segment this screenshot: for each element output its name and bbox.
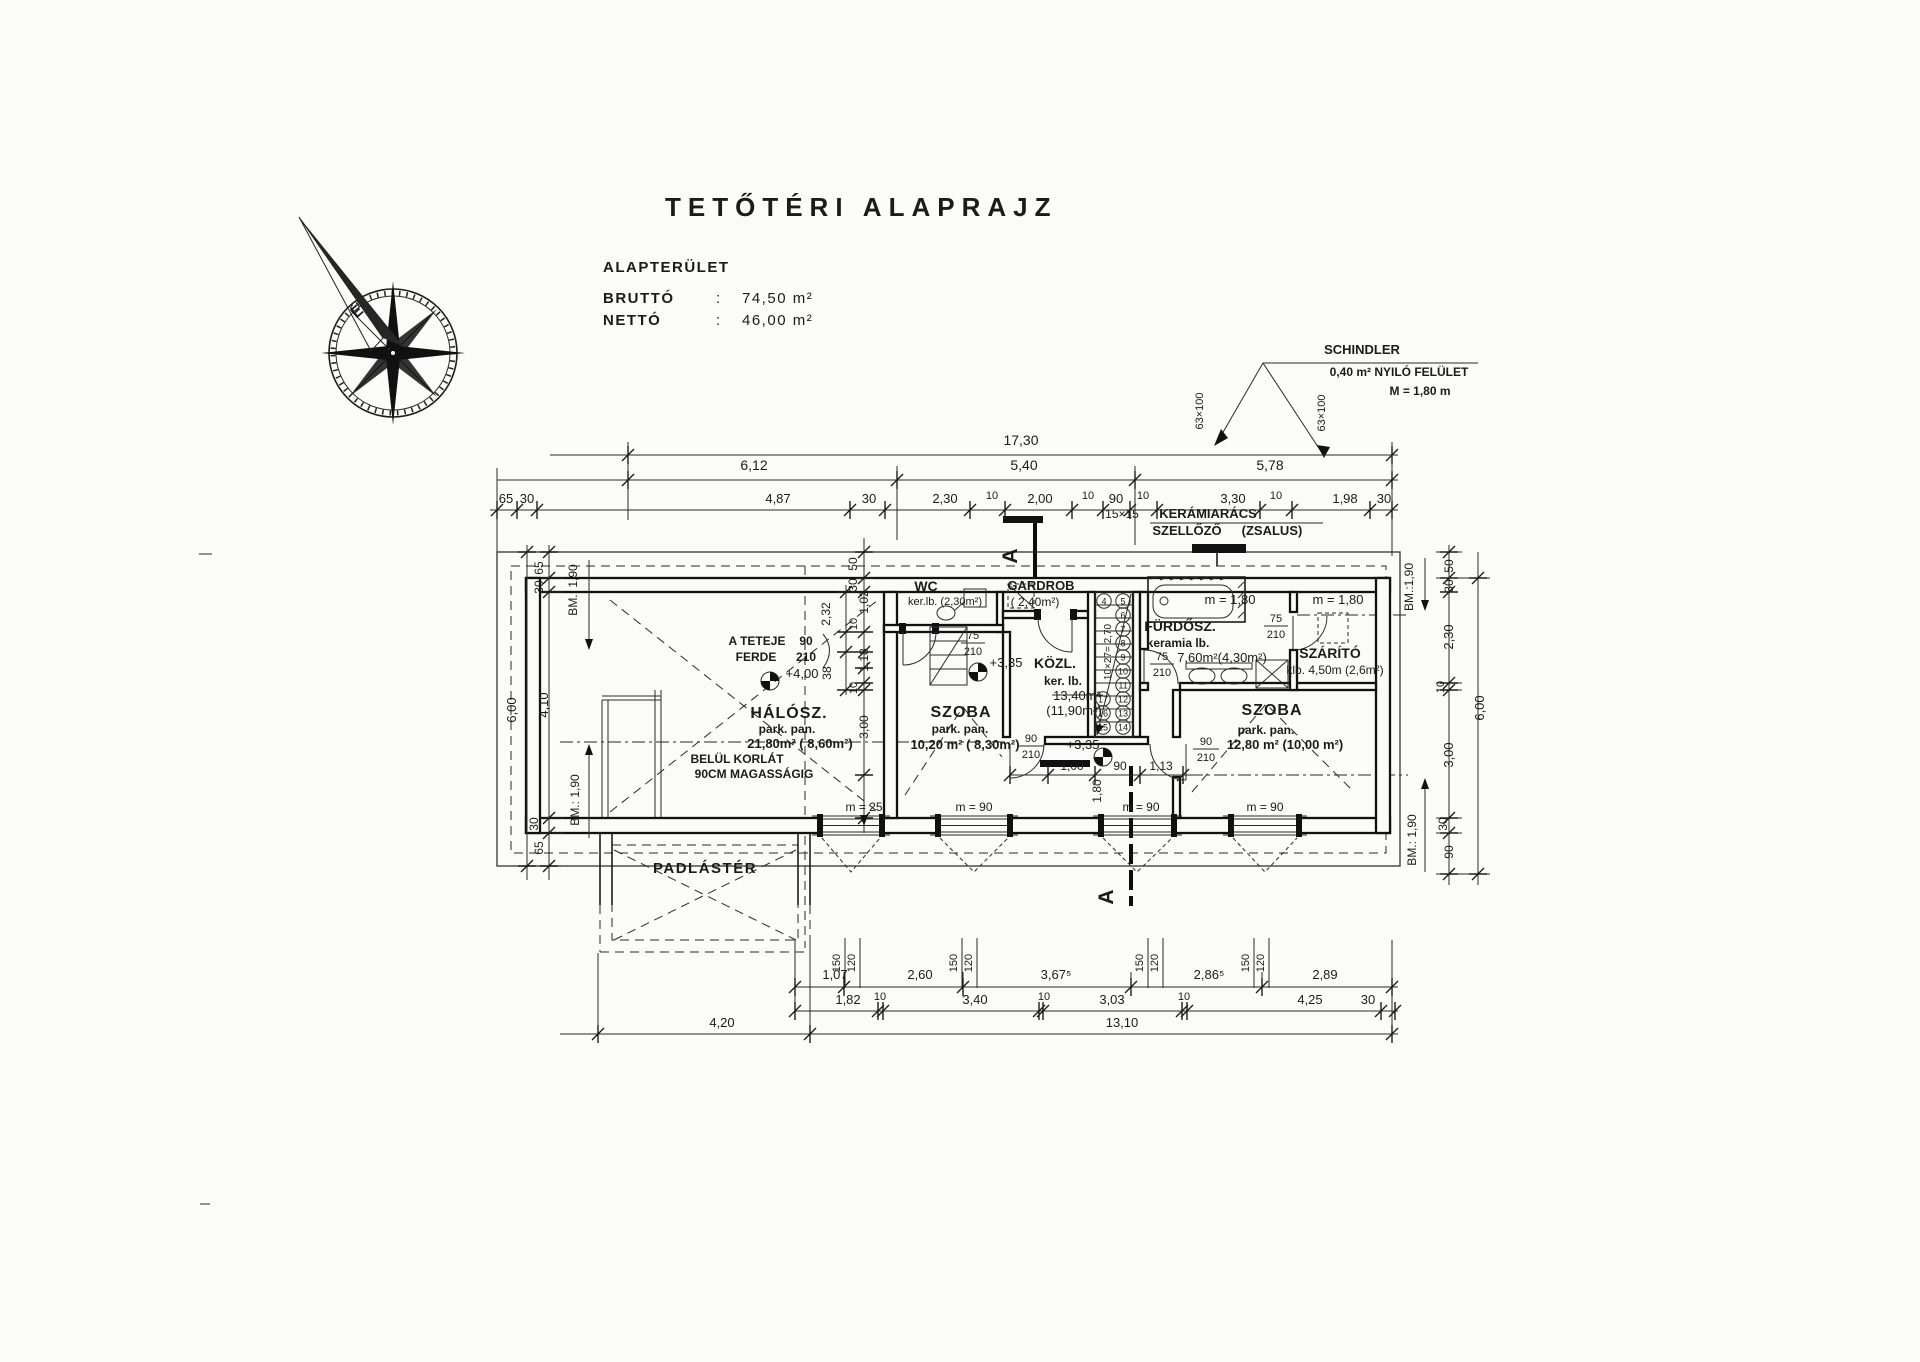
dim-label: 120 — [846, 954, 858, 972]
door-width: 90 — [1025, 733, 1037, 745]
vent-shutter: (ZSALUS) — [1242, 523, 1303, 538]
roof-note-value: 90 — [799, 634, 813, 648]
step-number: 4 — [1101, 597, 1106, 607]
area-row-colon: : — [716, 290, 722, 307]
door-height: 210 — [1022, 749, 1040, 761]
vent-type: SZELLŐZŐ — [1152, 523, 1221, 538]
section-label: A — [999, 548, 1022, 563]
dim-label: 5,40 — [1010, 457, 1037, 473]
dim-label: 120 — [963, 954, 975, 972]
washbasins — [1186, 663, 1252, 684]
dim-label: 4,25 — [1297, 992, 1322, 1007]
dim-label: 1,98 — [1332, 491, 1357, 506]
area-table: ALAPTERÜLET BRUTTÓ : 74,50 m² NETTÓ : 46… — [603, 259, 813, 329]
dim-label: 10 — [1178, 991, 1190, 1003]
area-row-colon: : — [716, 312, 722, 329]
railing-note: 90CM MAGASSÁGIG — [695, 766, 814, 781]
schindler-area: 0,40 m² NYILÓ FELÜLET — [1330, 364, 1469, 379]
dim-label: 10 — [848, 682, 860, 694]
room-area: 13,40m² — [1053, 688, 1101, 703]
door-height: 210 — [964, 646, 982, 658]
dim-label: 2,30 — [1441, 624, 1456, 649]
dim-label: 3,30 — [1220, 491, 1245, 506]
section-label: A — [1095, 889, 1118, 904]
schindler-height: M = 1,80 m — [1389, 384, 1450, 398]
door-height: 210 — [1153, 667, 1171, 679]
room-area: 7,60m²(4,30m²) — [1177, 650, 1267, 665]
room-area: (11,90m²) — [1046, 703, 1101, 718]
area-row-label: BRUTTÓ — [603, 289, 675, 307]
level-marker-icon — [761, 672, 779, 690]
dim-label: 120 — [1149, 954, 1161, 972]
dim-label: 4,20 — [709, 1015, 734, 1030]
page-title: TETŐTÉRI ALAPRAJZ — [665, 192, 1057, 222]
dim-label: 1,18 — [857, 648, 871, 672]
room-name: FÜRDŐSZ. — [1144, 617, 1216, 634]
room-name: SZOBA — [931, 704, 992, 721]
room-finish: keramia lb. — [1147, 636, 1210, 650]
step-number: 8 — [1120, 639, 1125, 649]
dim-label: 30 — [520, 491, 534, 506]
dim-label: 10 — [874, 991, 886, 1003]
dim-label: 30 — [862, 491, 876, 506]
dim-label: 1,82 — [835, 992, 860, 1007]
vent-grid-size: 15×15 — [1105, 507, 1139, 521]
dim-label: 90 — [1113, 759, 1127, 773]
dim-label: 65 — [532, 841, 546, 855]
dim-label: 2,00 — [1027, 491, 1052, 506]
dim-label: 30 — [846, 578, 860, 592]
room-area: 21,80m² ( 8,60m²) — [747, 736, 853, 751]
step-number: 12 — [1118, 695, 1128, 705]
level-value: +4,00 — [786, 666, 819, 681]
dim-label: 3,00 — [1441, 742, 1456, 767]
schindler-note: SCHINDLER 0,40 m² NYILÓ FELÜLET M = 1,80… — [1194, 342, 1478, 458]
step-number: 13 — [1118, 709, 1128, 719]
dim-label: 90 — [1109, 491, 1123, 506]
area-row-label: NETTÓ — [603, 311, 661, 329]
dim-label: 2,89 — [1312, 967, 1337, 982]
dim-label: 1,80 — [1090, 779, 1104, 803]
room-finish: ker. lb. — [1044, 674, 1082, 688]
dim-label: 13,10 — [1106, 1015, 1139, 1030]
room-finish: park. pan. — [1238, 723, 1295, 737]
door-width: 90 — [1200, 736, 1212, 748]
dim-label: 10 — [986, 490, 998, 502]
dim-label: 6,00 — [1472, 695, 1487, 720]
tub-length-label: m = 1,80 — [1205, 592, 1256, 607]
dim-label: 5,78 — [1256, 457, 1283, 473]
dim-label: 30 — [527, 817, 541, 831]
level-value: +3,35 — [990, 655, 1023, 670]
dim-label: 50 — [1442, 559, 1456, 573]
stair-run-label: 10×27= 2,70 — [1103, 623, 1114, 680]
roof-note-label: A TETEJE — [729, 634, 786, 648]
door-height: 210 — [1197, 752, 1215, 764]
step-number: 5 — [1120, 597, 1125, 607]
left-dimensions: 6,00 65 30 4,10 30 65 BM.: 1,90 BM.: 1,9… — [504, 561, 582, 855]
dim-label: 4,87 — [765, 491, 790, 506]
dim-label: 30 — [1377, 491, 1391, 506]
vent-name: KERÁMIARÁCS — [1159, 506, 1257, 521]
dim-label: 17,30 — [1003, 432, 1038, 448]
door-width: 75 — [1156, 651, 1168, 663]
dim-label: 1,13 — [1149, 759, 1173, 773]
dim-label: 10 — [1038, 991, 1050, 1003]
dim-label: 65 — [532, 561, 546, 575]
door-width: 75 — [1270, 613, 1282, 625]
door-height: 210 — [1267, 629, 1285, 641]
dim-label: 150 — [948, 954, 960, 972]
dim-label: 10 — [1082, 490, 1094, 502]
step-number: 11 — [1118, 681, 1127, 691]
dim-label: 65 — [499, 491, 513, 506]
step-number: 14 — [1118, 723, 1128, 733]
dim-label: 90 — [1442, 845, 1456, 859]
bm-label: BM.:1,90 — [1402, 563, 1416, 611]
room-finish: park. pan. — [759, 722, 816, 736]
sill-height: m = 90 — [1122, 800, 1159, 814]
roof-window-size: 63×100 — [1194, 392, 1206, 429]
area-row-value: 46,00 m² — [742, 312, 813, 329]
dim-label: 3,00 — [857, 715, 871, 739]
step-number: 9 — [1120, 653, 1125, 663]
level-value: +3,35 — [1067, 737, 1100, 752]
step-number: 10 — [1118, 667, 1128, 677]
bm-label: BM.: 1,90 — [568, 774, 582, 826]
sill-height: m = 25 — [845, 800, 882, 814]
room-name: HÁLÓSZ. — [750, 703, 827, 722]
sill-height: m = 90 — [955, 800, 992, 814]
dim-label: 2,32 — [819, 602, 833, 626]
area-heading: ALAPTERÜLET — [603, 259, 730, 276]
bm-label: BM.: 1,90 — [1405, 814, 1419, 866]
dryer-dashed-box — [1318, 613, 1348, 643]
area-row-value: 74,50 m² — [742, 290, 813, 307]
room-finish: park. pan. — [932, 722, 989, 736]
step-number: 15 — [1098, 723, 1108, 733]
right-dimensions: 6,00 50 30 2,30 10 3,00 30 90 BM.:1,90 B… — [1402, 559, 1487, 866]
dim-label: 3,67⁵ — [1041, 967, 1072, 982]
dim-label: 10 — [1270, 490, 1282, 502]
dim-label: 10 — [1435, 681, 1447, 693]
schindler-brand: SCHINDLER — [1324, 342, 1400, 357]
dim-label: 3,40 — [962, 992, 987, 1007]
dim-label: 2,86⁵ — [1194, 967, 1225, 982]
dim-label: 6,12 — [740, 457, 767, 473]
dim-label: 6,00 — [504, 697, 519, 722]
sill-height: m = 90 — [1246, 800, 1283, 814]
window — [1223, 814, 1307, 872]
scan-artifacts — [199, 554, 212, 1204]
door-width: 75 — [967, 630, 979, 642]
dim-label: 30 — [532, 580, 546, 594]
dim-label: 30 — [1442, 579, 1456, 593]
level-marker-icon — [969, 663, 987, 681]
dim-label: 4,10 — [536, 692, 551, 717]
top-dimensions: 17,30 6,12 5,40 5,78 65 30 4,87 30 2,30 … — [499, 432, 1391, 506]
room-area: 10,20 m² ( 8,30m²) — [910, 737, 1019, 752]
floor-plan-canvas: TETŐTÉRI ALAPRAJZ ALAPTERÜLET BRUTTÓ : 7… — [0, 0, 1920, 1362]
window — [812, 814, 890, 872]
dim-label: 10 — [1137, 490, 1149, 502]
room-finish: ker.lb. (2,30m²) — [908, 596, 982, 608]
room-area: klb. 4,50m (2,6m²) — [1286, 663, 1383, 677]
roof-window-size: 63×100 — [1316, 394, 1328, 431]
dim-label: 10 — [848, 618, 860, 630]
step-number: 6 — [1120, 611, 1125, 621]
dim-label: 1,00 — [1060, 759, 1084, 773]
dim-label: 50 — [846, 557, 860, 571]
room-height-label: m = 1,80 — [1313, 592, 1364, 607]
roof-note-value: 210 — [796, 650, 816, 664]
bottom-dimensions: 1,07 2,60 3,67⁵ 2,86⁵ 2,89 1,82 10 3,40 … — [709, 954, 1375, 1030]
railing-note: BELÜL KORLÁT — [690, 751, 784, 766]
room-name: KÖZL. — [1034, 655, 1076, 671]
room-name: SZOBA — [1242, 702, 1303, 719]
bm-label: BM.: 1,90 — [566, 564, 580, 616]
room-area: ( 2,40m²) — [1011, 595, 1060, 609]
step-number: 7 — [1120, 625, 1125, 635]
roof-note-label: FERDE — [736, 650, 777, 664]
room-name: GARDROB — [1007, 578, 1074, 593]
room-name: WC — [914, 578, 937, 594]
dim-label: 150 — [831, 954, 843, 972]
dim-label: 150 — [1134, 954, 1146, 972]
window — [1093, 814, 1182, 872]
dim-label: 2,30 — [932, 491, 957, 506]
scanned-floor-plan-page: TETŐTÉRI ALAPRAJZ ALAPTERÜLET BRUTTÓ : 7… — [0, 0, 1920, 1362]
dim-label: 1,02 — [857, 590, 871, 614]
compass-rose-icon: É — [299, 217, 465, 425]
dim-label: 38 — [820, 666, 834, 680]
dim-label: 150 — [1240, 954, 1252, 972]
dim-label: 2,60 — [907, 967, 932, 982]
room-area: 12,80 m² (10,00 m²) — [1227, 737, 1343, 752]
window — [930, 814, 1018, 872]
dim-label: 30 — [1361, 992, 1375, 1007]
dim-label: 30 — [1436, 817, 1450, 831]
room-name: SZÁRÍTÓ — [1299, 644, 1361, 661]
dim-label: 120 — [1255, 954, 1267, 972]
dim-label: 3,03 — [1099, 992, 1124, 1007]
room-name: PADLÁSTÉR — [653, 860, 757, 877]
